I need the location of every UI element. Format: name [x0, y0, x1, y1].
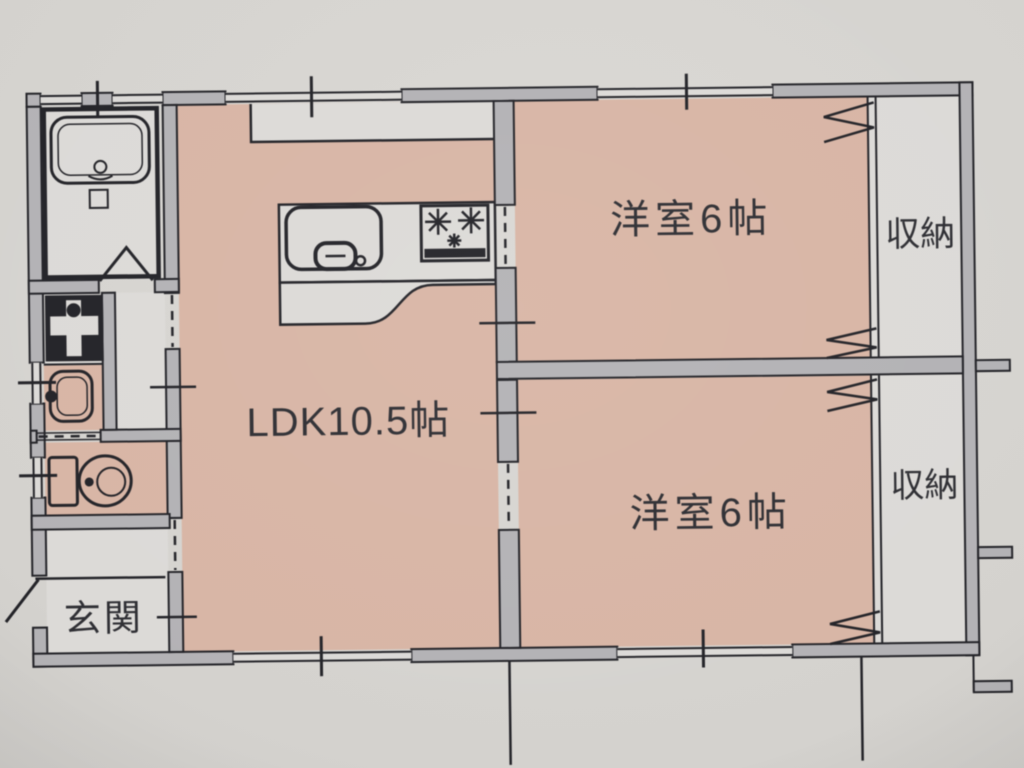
entrance-step-line — [35, 577, 165, 579]
bedroom-upper-label: 洋室6帖 — [610, 197, 773, 243]
washing-machine-pan-icon — [45, 295, 104, 362]
floor-plan-drawing: LDK10.5帖 洋室6帖 洋室6帖 収納 収納 玄関 — [0, 0, 1024, 768]
ldk-label: LDK10.5帖 — [246, 399, 450, 445]
laundry-divider — [44, 364, 103, 365]
room-ldk — [177, 101, 501, 652]
floor-plan-photo: LDK10.5帖 洋室6帖 洋室6帖 収納 収納 玄関 — [0, 0, 1024, 768]
window-symbol — [112, 93, 162, 105]
hallway — [115, 292, 167, 442]
room-closet-lower — [871, 374, 966, 643]
entrance-label: 玄関 — [64, 597, 144, 639]
entrance-door-icon — [5, 580, 39, 622]
closet-lower-label: 収納 — [890, 466, 958, 505]
bedroom-lower-label: 洋室6帖 — [629, 490, 792, 536]
balcony-lines — [509, 655, 1012, 765]
closet-upper-label: 収納 — [885, 214, 955, 254]
